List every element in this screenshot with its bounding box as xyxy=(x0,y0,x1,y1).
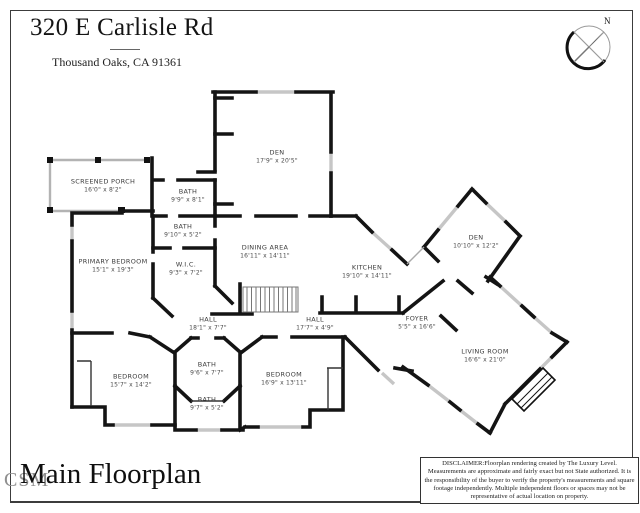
room-dimensions: 16'9" x 13'11" xyxy=(261,379,307,387)
room-dimensions: 10'10" x 12'2" xyxy=(453,242,499,250)
room-name: BATH xyxy=(164,223,202,232)
room-label-12-bedroom: BEDROOM15'7" x 14'2" xyxy=(110,373,152,390)
room-name: LIVING ROOM xyxy=(461,348,509,357)
room-name: BATH xyxy=(190,396,224,405)
room-labels: DEN17'9" x 20'5"SCREENED PORCH16'0" x 8'… xyxy=(0,0,640,513)
room-name: FOYER xyxy=(398,315,436,324)
room-name: BATH xyxy=(190,361,224,370)
room-dimensions: 15'7" x 14'2" xyxy=(110,381,152,389)
room-label-14-bath: BATH9'7" x 5'2" xyxy=(190,396,224,413)
room-label-8-den: DEN10'10" x 12'2" xyxy=(453,234,499,251)
room-dimensions: 19'10" x 14'11" xyxy=(342,272,392,280)
room-name: DINING AREA xyxy=(240,244,290,253)
room-name: BATH xyxy=(171,188,205,197)
room-name: HALL xyxy=(296,316,334,325)
room-dimensions: 9'10" x 5'2" xyxy=(164,231,202,239)
room-label-1-screened-porch: SCREENED PORCH16'0" x 8'2" xyxy=(71,178,135,195)
room-name: HALL xyxy=(189,316,227,325)
room-label-6-dining-area: DINING AREA16'11" x 14'11" xyxy=(240,244,290,261)
disclaimer-box: DISCLAIMER:Floorplan rendering created b… xyxy=(420,457,639,504)
room-dimensions: 9'7" x 5'2" xyxy=(190,404,224,412)
room-dimensions: 16'0" x 8'2" xyxy=(71,186,135,194)
room-label-9-hall: HALL18'1" x 7'7" xyxy=(189,316,227,333)
room-label-7-kitchen: KITCHEN19'10" x 14'11" xyxy=(342,264,392,281)
room-dimensions: 9'6" x 7'7" xyxy=(190,369,224,377)
room-dimensions: 5'5" x 16'6" xyxy=(398,323,436,331)
room-name: W.I.C. xyxy=(169,261,203,270)
room-label-4-w-i-c-: W.I.C.9'3" x 7'2" xyxy=(169,261,203,278)
plan-title: Main Floorplan xyxy=(20,458,201,491)
room-label-10-hall: HALL17'7" x 4'9" xyxy=(296,316,334,333)
room-dimensions: 15'1" x 19'3" xyxy=(79,266,148,274)
room-name: PRIMARY BEDROOM xyxy=(79,258,148,267)
room-label-15-bedroom: BEDROOM16'9" x 13'11" xyxy=(261,371,307,388)
room-name: DEN xyxy=(453,234,499,243)
room-dimensions: 9'3" x 7'2" xyxy=(169,269,203,277)
room-label-11-foyer: FOYER5'5" x 16'6" xyxy=(398,315,436,332)
room-name: DEN xyxy=(256,149,298,158)
room-dimensions: 16'11" x 14'11" xyxy=(240,252,290,260)
room-label-0-den: DEN17'9" x 20'5" xyxy=(256,149,298,166)
room-label-13-bath: BATH9'6" x 7'7" xyxy=(190,361,224,378)
room-label-3-bath: BATH9'10" x 5'2" xyxy=(164,223,202,240)
room-name: BEDROOM xyxy=(110,373,152,382)
room-dimensions: 16'6" x 21'0" xyxy=(461,356,509,364)
room-name: BEDROOM xyxy=(261,371,307,380)
room-dimensions: 18'1" x 7'7" xyxy=(189,324,227,332)
room-name: SCREENED PORCH xyxy=(71,178,135,187)
room-dimensions: 17'9" x 20'5" xyxy=(256,157,298,165)
room-label-2-bath: BATH9'9" x 8'1" xyxy=(171,188,205,205)
room-dimensions: 17'7" x 4'9" xyxy=(296,324,334,332)
room-label-5-primary-bedroom: PRIMARY BEDROOM15'1" x 19'3" xyxy=(79,258,148,275)
room-label-16-living-room: LIVING ROOM16'6" x 21'0" xyxy=(461,348,509,365)
room-name: KITCHEN xyxy=(342,264,392,273)
room-dimensions: 9'9" x 8'1" xyxy=(171,196,205,204)
floorplan-page: 320 E Carlisle Rd Thousand Oaks, CA 9136… xyxy=(0,0,640,513)
